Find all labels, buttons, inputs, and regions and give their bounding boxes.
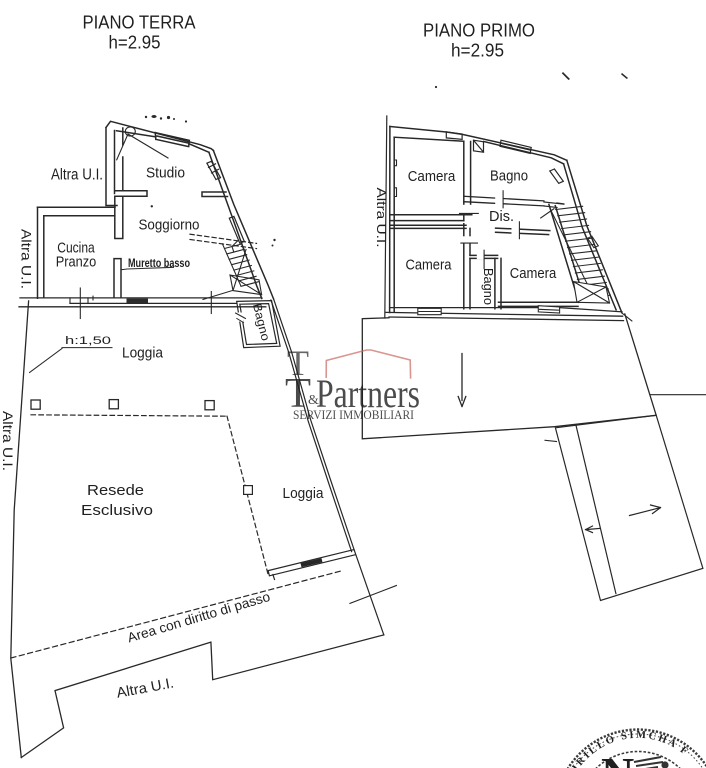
svg-text:Bagno: Bagno: [481, 268, 495, 305]
svg-text:PIANO TERRA: PIANO TERRA: [83, 13, 196, 33]
svg-text:Camera: Camera: [406, 257, 453, 274]
svg-text:Muretto basso: Muretto basso: [128, 258, 190, 270]
svg-text:Dis.: Dis.: [489, 208, 514, 225]
svg-text:Esclusivo: Esclusivo: [81, 502, 153, 519]
svg-text:Pranzo: Pranzo: [56, 254, 97, 271]
svg-text:Altra U.I.: Altra U.I.: [374, 188, 389, 248]
svg-text:Soggiorno: Soggiorno: [139, 217, 200, 234]
svg-text:N: N: [601, 748, 634, 768]
svg-text:Altra U.I.: Altra U.I.: [19, 229, 34, 289]
svg-text:Altra U.I.: Altra U.I.: [51, 167, 103, 184]
svg-text:Studio: Studio: [146, 165, 185, 182]
svg-text:Altra U.I.: Altra U.I.: [0, 411, 15, 471]
svg-text:Camera: Camera: [408, 168, 456, 185]
svg-text:Loggia: Loggia: [283, 485, 325, 502]
svg-text:h:1,50: h:1,50: [65, 335, 111, 347]
svg-text:h=2.95: h=2.95: [451, 41, 504, 61]
svg-text:Resede: Resede: [87, 482, 144, 499]
svg-text:Loggia: Loggia: [122, 345, 164, 362]
svg-text:PIANO PRIMO: PIANO PRIMO: [423, 21, 535, 41]
svg-text:h=2.95: h=2.95: [109, 33, 161, 53]
svg-text:Camera: Camera: [510, 265, 557, 282]
svg-text:SERVIZI IMMOBILIARI: SERVIZI IMMOBILIARI: [293, 407, 414, 422]
svg-text:Bagno: Bagno: [490, 168, 528, 185]
